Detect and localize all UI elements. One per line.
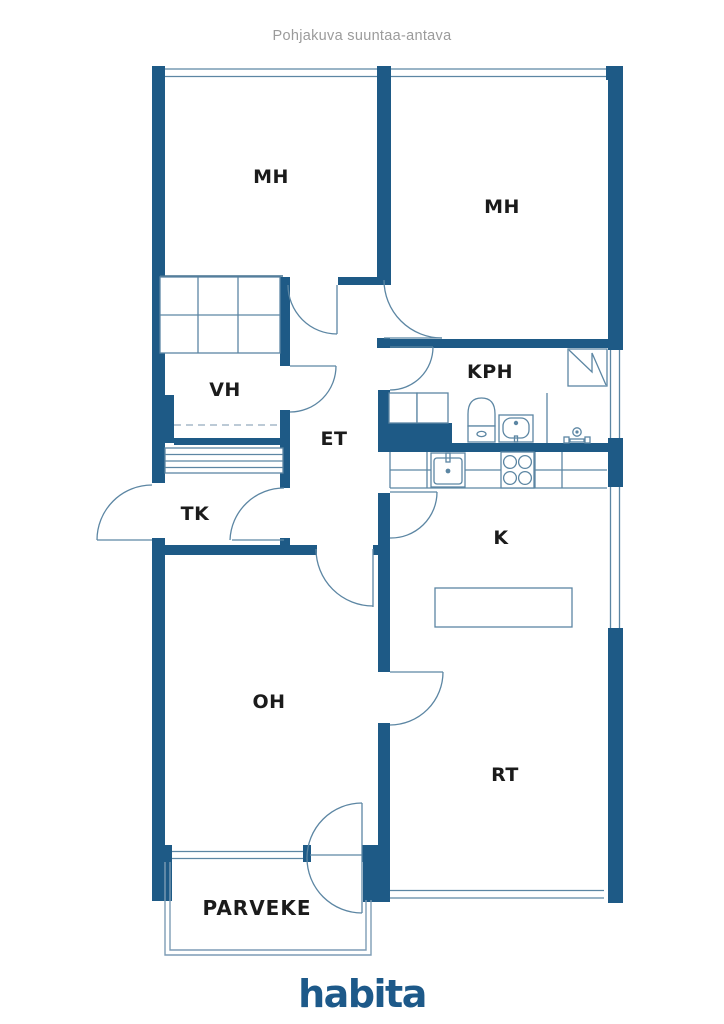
dining-table-icon	[435, 588, 572, 627]
door-front-entry	[97, 485, 152, 540]
room-label-mh-right: MH	[484, 196, 520, 218]
door-vh	[290, 366, 336, 412]
doors	[97, 280, 443, 913]
habita-logo: habita	[0, 972, 724, 1016]
window-oh-bottom	[172, 852, 303, 859]
floor-plan-page: Pohjakuva suuntaa-antava	[0, 0, 724, 1024]
wardrobe-grid-icon	[160, 277, 280, 353]
room-label-parveke: PARVEKE	[202, 896, 311, 920]
shower-icon	[568, 349, 607, 386]
room-label-rt: RT	[491, 764, 519, 786]
door-oh	[316, 549, 373, 607]
door-kitchen	[390, 492, 437, 538]
window-top-right	[391, 69, 606, 77]
room-label-tk: TK	[181, 503, 210, 525]
room-label-vh: VH	[209, 379, 241, 401]
door-rt	[390, 672, 443, 725]
floor-plan-drawing	[0, 0, 724, 1024]
window-rt-bottom	[390, 891, 604, 899]
room-label-k: K	[493, 527, 508, 549]
closet-shelves-icon	[165, 448, 283, 473]
washing-machine-icon	[389, 393, 448, 423]
kitchen-sink-icon	[431, 453, 465, 487]
stove-icon	[501, 452, 534, 488]
room-label-kph: KPH	[467, 361, 513, 383]
window-right-kph	[611, 350, 620, 438]
windows	[165, 69, 620, 898]
door-tk	[230, 488, 284, 540]
room-label-mh-left: MH	[253, 166, 289, 188]
room-label-oh: OH	[252, 691, 285, 713]
door-kph	[390, 347, 433, 390]
window-top-left	[165, 69, 377, 77]
walls	[152, 66, 623, 903]
door-mh-left	[288, 285, 337, 334]
faucet-icon	[564, 428, 590, 443]
room-label-et: ET	[321, 428, 348, 450]
bathroom-sink-icon	[499, 415, 533, 442]
door-balcony	[307, 803, 362, 913]
kitchen-counter	[390, 452, 607, 488]
window-right-kitchen	[611, 487, 620, 628]
door-mh-right	[384, 280, 442, 338]
toilet-icon	[468, 398, 495, 442]
